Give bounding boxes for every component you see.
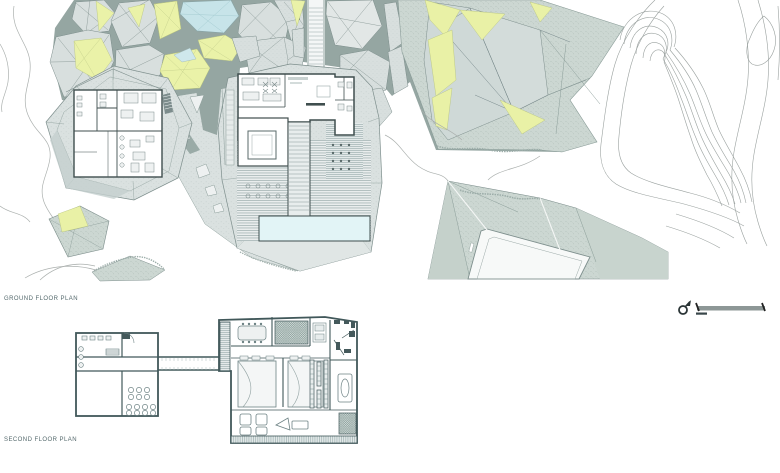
svg-text:SECOND FLOOR PLAN: SECOND FLOOR PLAN (4, 437, 77, 443)
svg-text:GROUND FLOOR PLAN: GROUND FLOOR PLAN (4, 296, 78, 302)
